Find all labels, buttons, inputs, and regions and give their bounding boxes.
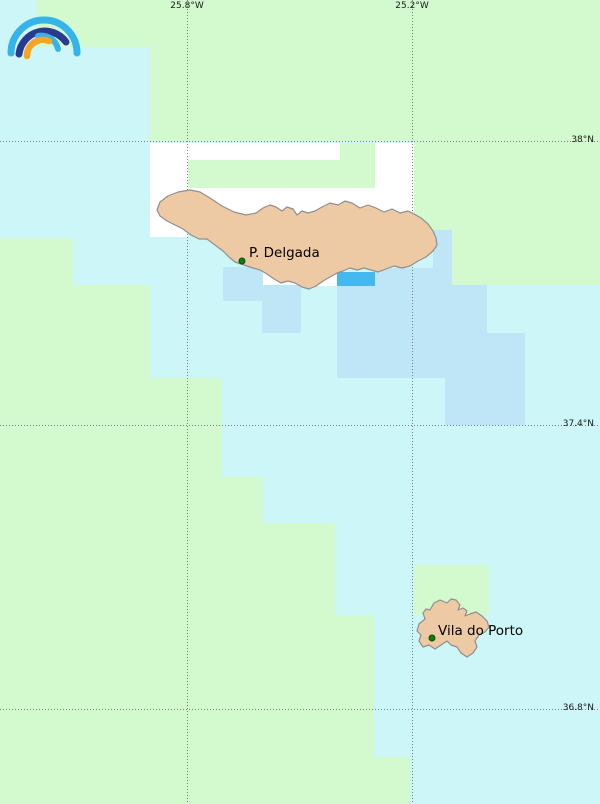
rainbow-logo[interactable]	[0, 0, 90, 70]
city-marker	[239, 258, 246, 265]
weather-map[interactable]: 25.8°W25.2°W38°N37.4°N36.8°N P. DelgadaV…	[0, 0, 600, 804]
city-label: P. Delgada	[249, 245, 320, 261]
island-sao-miguel	[157, 190, 437, 289]
city-marker	[429, 635, 436, 642]
city-label: Vila do Porto	[438, 623, 523, 639]
islands-layer	[0, 0, 600, 804]
rainbow-arc	[27, 40, 49, 56]
